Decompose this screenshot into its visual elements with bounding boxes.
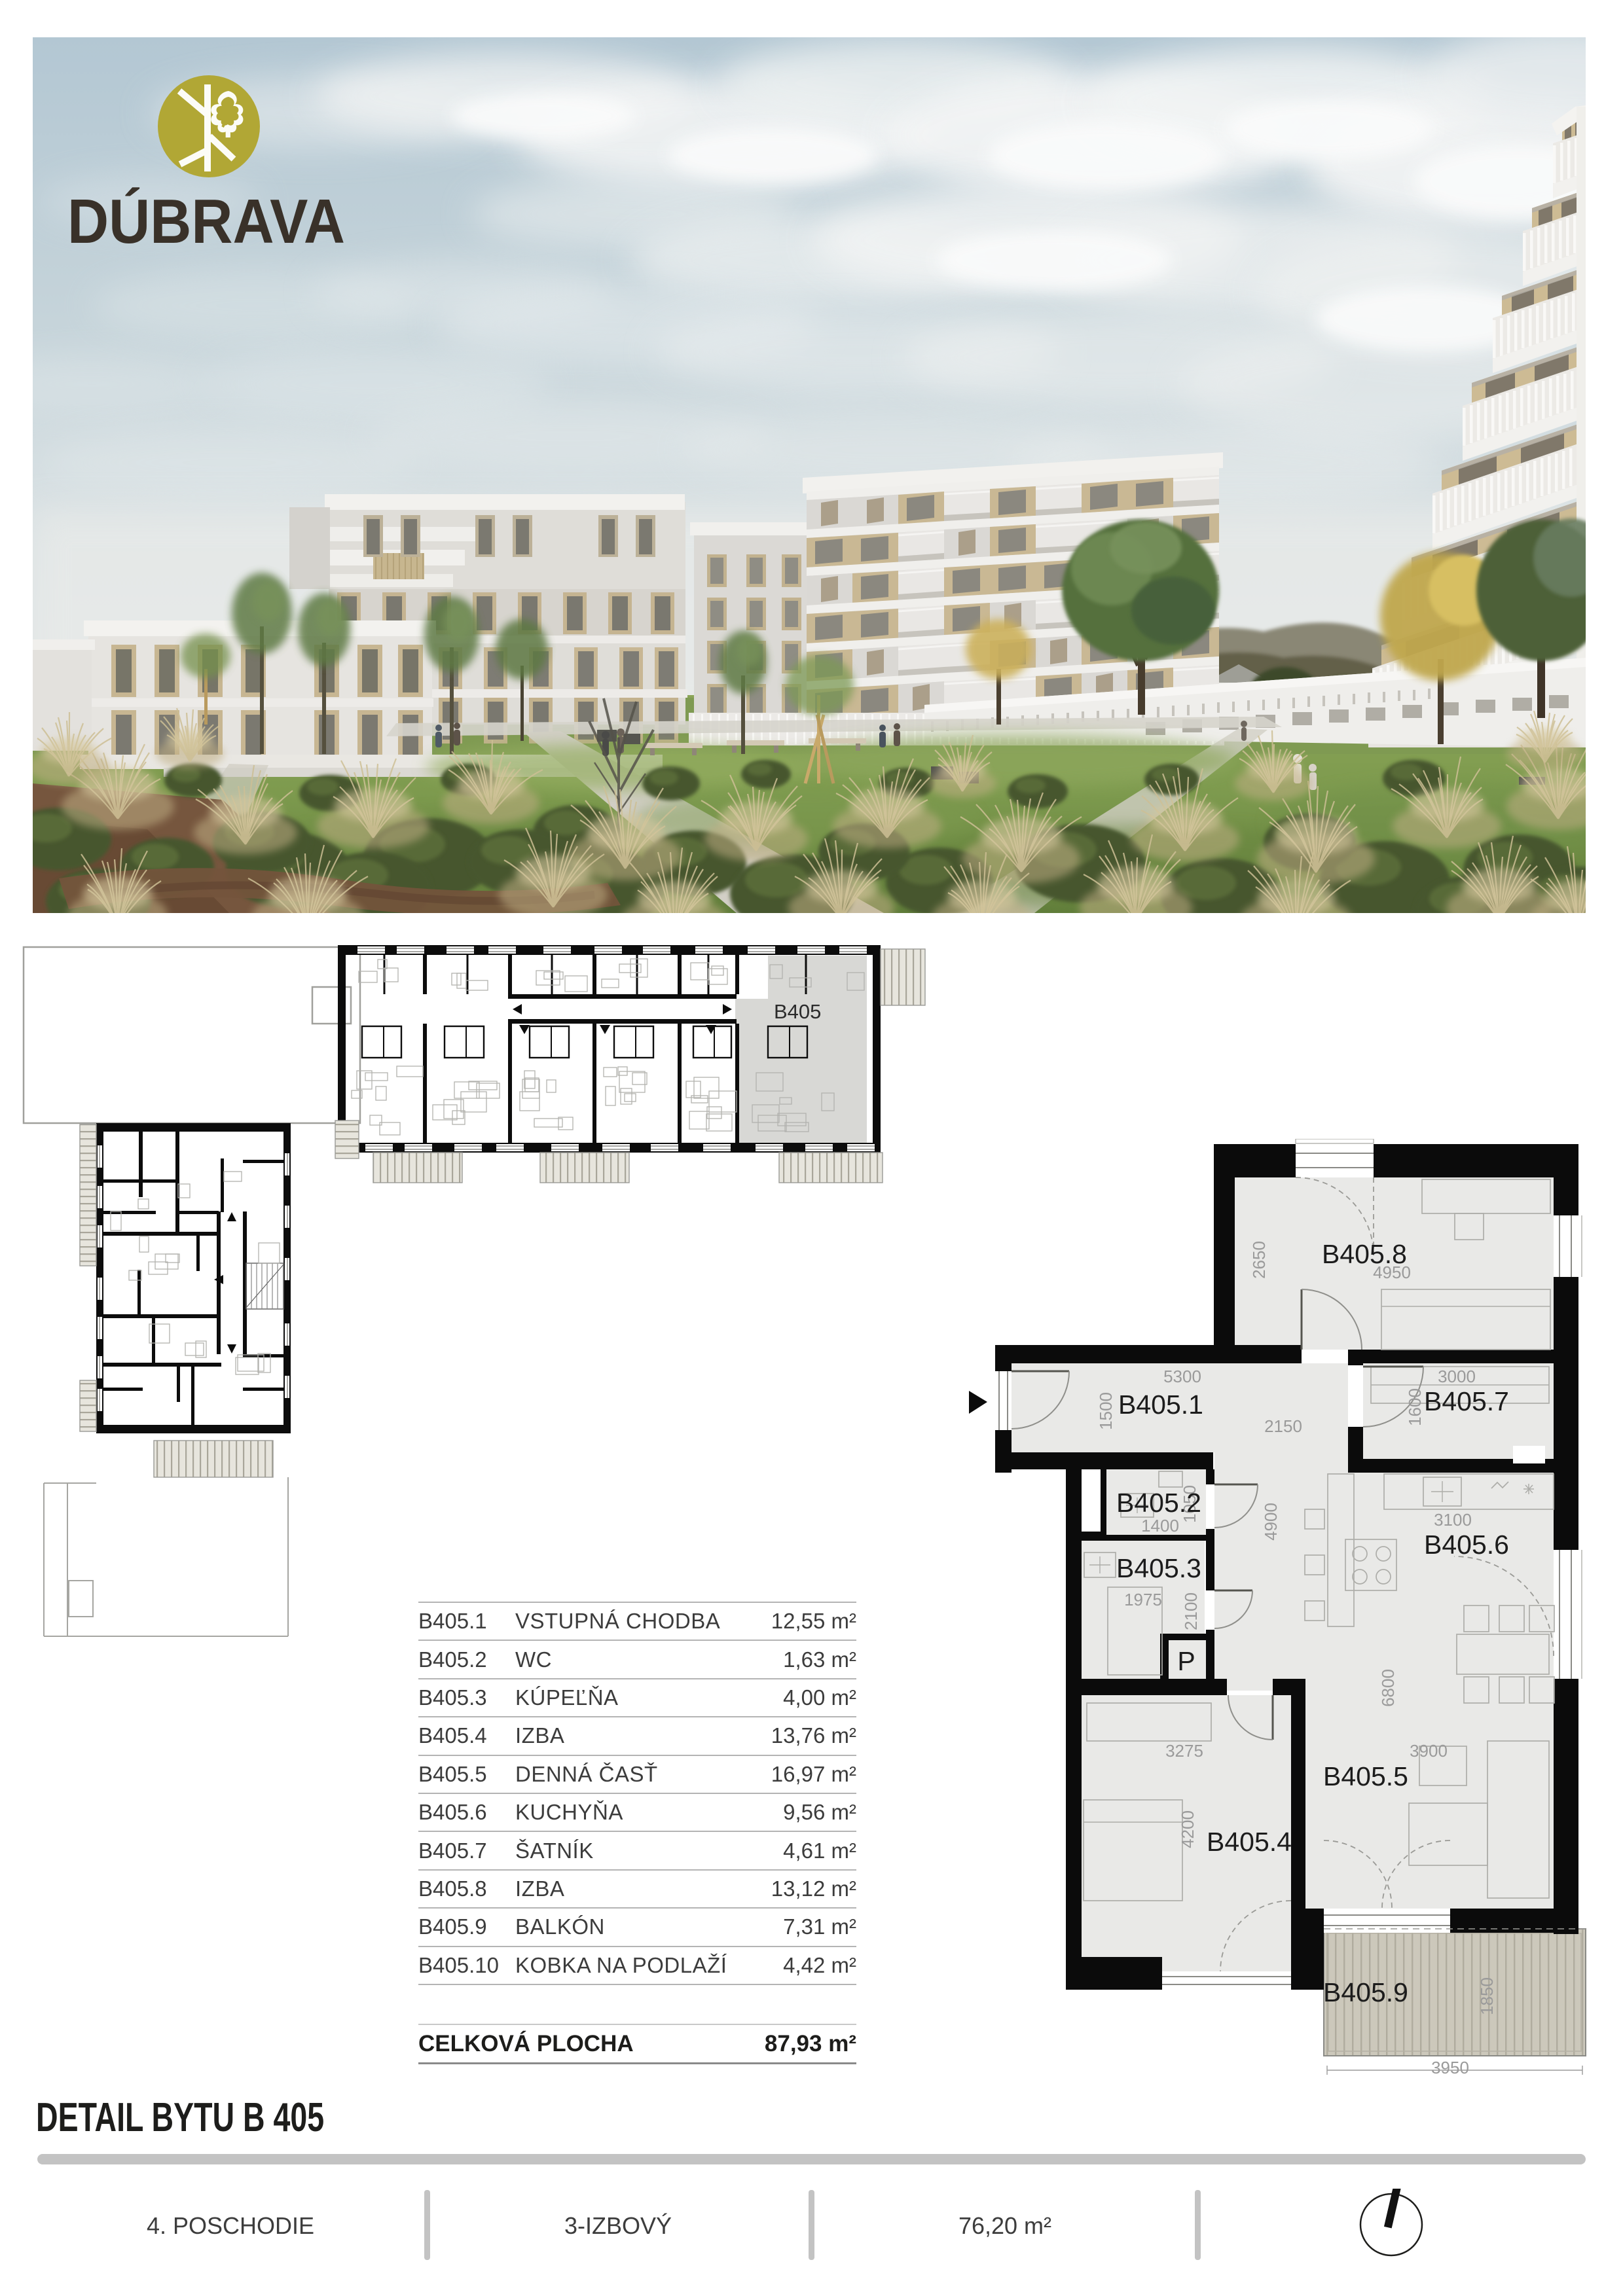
svg-text:B405.4: B405.4	[1207, 1827, 1292, 1857]
svg-text:3950: 3950	[1431, 2058, 1469, 2077]
svg-text:2650: 2650	[1249, 1241, 1269, 1279]
svg-text:B405.6: B405.6	[1424, 1530, 1509, 1560]
svg-text:4200: 4200	[1178, 1810, 1197, 1848]
svg-text:B405.8: B405.8	[1322, 1239, 1407, 1269]
svg-text:1850: 1850	[1477, 1977, 1497, 2015]
svg-text:2150: 2150	[1264, 1416, 1302, 1436]
svg-text:3900: 3900	[1410, 1741, 1448, 1761]
svg-text:1975: 1975	[1124, 1590, 1162, 1609]
svg-text:3275: 3275	[1165, 1741, 1203, 1761]
svg-text:B405.5: B405.5	[1323, 1761, 1408, 1791]
svg-text:B405.3: B405.3	[1116, 1553, 1201, 1583]
svg-text:2100: 2100	[1181, 1592, 1201, 1630]
svg-text:6800: 6800	[1378, 1669, 1398, 1707]
svg-text:B405.9: B405.9	[1323, 1977, 1408, 2007]
svg-text:3100: 3100	[1434, 1510, 1472, 1530]
svg-text:P: P	[1177, 1646, 1195, 1676]
svg-text:3000: 3000	[1438, 1367, 1476, 1386]
svg-text:B405: B405	[774, 1000, 821, 1023]
svg-text:B405.1: B405.1	[1118, 1390, 1203, 1420]
svg-text:1400: 1400	[1141, 1516, 1179, 1535]
svg-text:5300: 5300	[1163, 1367, 1201, 1386]
svg-text:B405.2: B405.2	[1116, 1488, 1201, 1518]
svg-text:4900: 4900	[1261, 1503, 1281, 1541]
svg-text:B405.7: B405.7	[1424, 1386, 1509, 1416]
svg-text:1600: 1600	[1405, 1388, 1425, 1426]
svg-text:1500: 1500	[1096, 1392, 1116, 1430]
svg-text:DÚBRAVA: DÚBRAVA	[67, 187, 345, 257]
